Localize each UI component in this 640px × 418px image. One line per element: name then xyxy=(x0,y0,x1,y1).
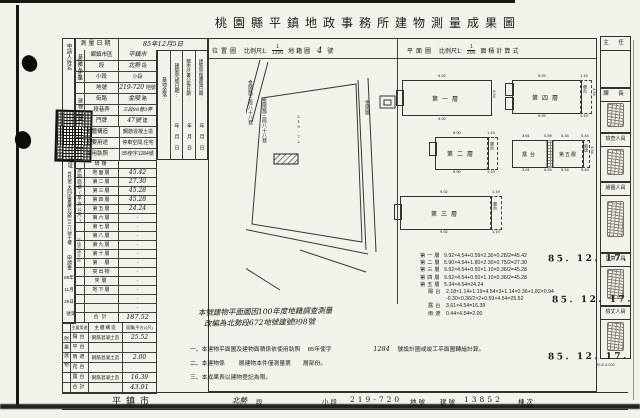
plan-floor2: 第二層 xyxy=(435,137,489,170)
approval-stamp xyxy=(607,201,624,237)
building-admin-date-label: 建築管理實施日期: xyxy=(199,59,204,101)
scan-right-edge xyxy=(633,40,634,400)
info-value: 金陵 路 xyxy=(119,94,156,104)
bottom-building-number: 13852 xyxy=(464,395,503,404)
attached-label: 雨遮 xyxy=(71,353,89,362)
ymd-label: 年月日 xyxy=(199,123,204,156)
punch-hole xyxy=(19,52,40,74)
road-label-center: 金陵路三段八十八巷 xyxy=(261,98,266,143)
formula-line: 陽台2.18×1.14+1.19×4.54×3+1.14×0.36+1.82×0… xyxy=(428,289,554,296)
info-label: 街路 xyxy=(85,94,119,104)
cadastral-sheet-label: 地籍圖 xyxy=(288,46,312,55)
plan-floor3-appendage xyxy=(394,204,402,220)
city-plan-date-label: 都市計畫公佈日期: xyxy=(186,59,191,101)
approval-stamp xyxy=(607,322,624,351)
dim-label: 1.19 xyxy=(492,190,500,194)
manager-label: 課 長 xyxy=(603,91,628,97)
chief-label: 主 任 xyxy=(603,40,628,46)
info-label: 小段 xyxy=(85,72,119,82)
plan-floor1: 第一層 xyxy=(402,80,492,116)
dim-label: 9.92 xyxy=(438,74,446,78)
floor-label: 地下層 xyxy=(85,286,119,294)
attached-value xyxy=(123,363,156,372)
approval-date-stamp: 85. 12. 17. xyxy=(548,254,629,265)
info-label: 主要用途 xyxy=(75,138,120,148)
floor-label: 第 層 xyxy=(85,259,119,267)
bottom-city: 平鎮市 xyxy=(112,394,154,407)
info-value: 停車空間,住宅 xyxy=(120,138,156,148)
dim-label: 4.54 xyxy=(492,90,496,98)
location-map-header: 位置圖 比例尺1: 11200 地籍圖 4 號 xyxy=(212,44,397,57)
dim-label: 1.19 xyxy=(492,230,500,234)
official-chief-sign-area xyxy=(600,48,631,89)
dim-label: 9.92 xyxy=(438,117,446,121)
formula-line: 露台3.61×4.54=16.39 xyxy=(428,303,554,310)
group-label-door: 建物門牌 xyxy=(77,98,82,122)
dim-label: 4.54 xyxy=(590,146,594,154)
plan-floor3-balcony: 陽台 xyxy=(490,196,502,230)
printed-note-1: 一、本建物平面圖及建物面積係依使用執照 85年使字 1284 號設計圖或竣工平面… xyxy=(190,344,484,353)
survey-date-row: 測量日期 85年12月5日 xyxy=(74,38,208,50)
info-value: 47號 建 xyxy=(119,116,156,126)
approval-stamp xyxy=(607,149,624,175)
info-label: 主體構造 xyxy=(75,127,120,137)
floor-value: · xyxy=(119,304,156,312)
dim-label: 5.34 xyxy=(561,134,569,138)
dim-label: 9.92 xyxy=(440,230,448,234)
info-value: 平鎮市 xyxy=(119,50,156,60)
group-label-site: 基地坐落 xyxy=(77,54,82,82)
attached-structure xyxy=(89,343,123,352)
attached-label: 露台 xyxy=(71,373,89,382)
floor-label: 第八層 xyxy=(85,232,119,240)
section-divider-vertical xyxy=(397,38,398,304)
completion-date-label: 建築完成日期: xyxy=(174,63,179,99)
floor-value: · xyxy=(119,214,156,222)
plan-floor4-stair-box xyxy=(505,83,514,96)
dim-label: 1.19 xyxy=(487,131,495,135)
info-label: 地號 xyxy=(85,83,119,93)
floor-total-label: 合計 xyxy=(85,313,119,322)
balcony-label: 陽台 xyxy=(490,142,494,150)
printed-note-2: 二、本建物係層建物本件僅測量第層部份。 xyxy=(190,358,326,367)
approval-date-stamp: 85. 12. 17. xyxy=(548,352,629,363)
floor-value: · xyxy=(119,277,156,285)
attached-value xyxy=(123,343,156,352)
info-value: 85使字1284號 xyxy=(120,149,156,160)
group-label-attached: 附屬建物 xyxy=(64,336,69,370)
floor-label: 第五層 xyxy=(85,205,119,213)
floor-plan-title: 平面圖 xyxy=(407,46,434,55)
survey-date-label: 測量日期 xyxy=(75,39,119,50)
attached-structures-table: 主要用途主體構造面積(平方公尺) 陽台鋼筋混凝土造25.52 平台 雨遮鋼筋混凝… xyxy=(62,322,157,394)
area-calc-label: 面積計算式 xyxy=(480,46,520,55)
official-manager-sign-area xyxy=(600,99,631,134)
info-value: 三段88巷3弄 xyxy=(119,105,156,115)
dim-label: 1.19 xyxy=(487,170,495,174)
road-label-right: 金陵路 xyxy=(364,100,369,115)
floor-label: 騎樓 xyxy=(85,160,119,168)
road-label-left: 金陵路三段八十八巷 xyxy=(247,80,252,125)
floor-plan-header: 平面圖 比例尺1: 1200 面積計算式 xyxy=(407,44,587,57)
dim-label: 9.92 xyxy=(538,74,546,78)
cadastral-sheet-number: 4 xyxy=(317,46,322,55)
floor-label xyxy=(85,295,119,303)
floor-area-table: 騎樓 地面層45.42 第二層27.30 第三層45.28 第四層45.28 第… xyxy=(74,160,157,323)
dim-label: 3.61 xyxy=(522,134,530,138)
cadastral-sheet-suffix: 號 xyxy=(327,46,333,55)
building-info-table: 鄉鎮市區平鎮市 段北勢 段 小段 小段 地號219-720 地號 街路金陵 路 … xyxy=(74,50,157,161)
dim-label: 3.61 xyxy=(522,168,530,172)
formula-line: 第四層9.92×4.54+0.50×1.10×0.36/2=45.28 xyxy=(420,275,554,282)
info-label: 門牌 xyxy=(85,116,119,126)
location-map-drawing xyxy=(246,58,397,292)
floor-label: 第四層 xyxy=(85,196,119,204)
dim-label: 5.34 xyxy=(561,168,569,172)
info-label: 段巷弄 xyxy=(85,105,119,115)
ymd-label: 年月日 xyxy=(186,123,191,156)
floor-value: · xyxy=(119,250,156,258)
dim-label: 9.92 xyxy=(440,190,448,194)
floor-value: · xyxy=(119,259,156,267)
attached-label: 陽台 xyxy=(71,333,89,342)
plan-floor5: 第五層 xyxy=(552,140,584,168)
floor-value: · xyxy=(119,295,156,303)
floor-value: 24.24 xyxy=(119,205,156,213)
scanned-survey-document: 桃園縣平鎮地政事務所建物測量成果圖 申請人姓名 住址 台北市大同區重慶北路三三八… xyxy=(0,0,640,418)
floor-label: 地面層 xyxy=(85,169,119,177)
bottom-section-suffix: 段 xyxy=(256,396,263,406)
dim-label: 1.19 xyxy=(580,114,588,118)
address-value: 台北市大同區重慶北路三三八號十樓 xyxy=(66,171,71,245)
bottom-section: 北勢 xyxy=(232,395,247,406)
floor-label: 第九層 xyxy=(85,241,119,249)
attached-label: 花台 xyxy=(71,363,89,372)
attached-structure: 鋼筋混凝土造 xyxy=(89,333,123,342)
remeasure-note-line2: 改編為北勢段672地號建號998號 xyxy=(204,316,315,329)
info-label: 使用執照 xyxy=(75,149,120,160)
balcony-label: 陽台 xyxy=(493,202,497,210)
approval-date-stamp: 85. 12. 17. xyxy=(552,295,633,306)
floor-value: 45.28 xyxy=(119,196,156,204)
info-value: 小段 xyxy=(119,72,156,82)
floor-label: 第二層 xyxy=(85,178,119,186)
dim-label: 5.90 xyxy=(453,170,461,174)
ymd-label: 年月日 xyxy=(174,123,179,156)
measure-role-label: 檢丈人員 xyxy=(605,309,625,315)
floor-label: 第七層 xyxy=(85,223,119,231)
formula-line: 第三層9.92×4.54+0.50×1.10×0.36/2=45.28 xyxy=(420,267,554,274)
floor-value: · xyxy=(119,241,156,249)
official-check-sign-area xyxy=(600,144,631,183)
plan-floor2-balcony: 陽台 xyxy=(487,137,498,170)
attached-value: 25.52 xyxy=(123,333,156,342)
floor-label: 第六層 xyxy=(85,214,119,222)
dim-label: 1.19 xyxy=(580,74,588,78)
area-formula-list: 第一層9.92×4.54+0.59×2.30×0.28/2=45.42 第二層5… xyxy=(420,253,554,318)
draw-role-label: 繪圖人員 xyxy=(605,185,625,191)
applicant-name-label: 申請人姓名 xyxy=(65,43,71,71)
plan-terrace: 露台 xyxy=(512,140,548,168)
attached-structure xyxy=(89,363,123,372)
formula-line: 第五層5.34×4.54=24.24 xyxy=(420,282,554,289)
plan-canopy: 雨遮 xyxy=(582,140,590,168)
floor-value: · xyxy=(119,286,156,294)
dim-label: 0.59 xyxy=(544,134,552,138)
plan-floor1-appendage xyxy=(396,90,404,106)
page-title: 桃園縣平鎮地政事務所建物測量成果圖 xyxy=(178,14,558,31)
plan-floor4: 第四層 xyxy=(512,80,582,114)
balcony-label: 陽台 xyxy=(583,85,587,93)
application-doc-label: 申請書 xyxy=(66,255,71,270)
floor-plan-scale-label: 比例尺1: xyxy=(439,46,462,55)
dim-label: 0.44 xyxy=(581,134,589,138)
dim-label: 0.44 xyxy=(581,168,589,172)
attached-structure-header: 主體構造 xyxy=(89,323,123,332)
attached-use-header: 主要用途 xyxy=(71,323,89,332)
bottom-unit-label: 棟次 xyxy=(518,396,535,406)
floor-label: 突出物 xyxy=(85,268,119,276)
bottom-parcel-suffix: 地號 xyxy=(410,396,427,406)
dim-label: 0.59 xyxy=(544,168,552,172)
floor-value: 45.42 xyxy=(119,169,156,177)
attached-structure: 鋼筋混凝土造 xyxy=(89,373,123,382)
bottom-parcel-number: 219-720 xyxy=(350,395,402,404)
attached-value: 2.00 xyxy=(123,353,156,362)
printed-note-3: 三、本成果表以建物登記為限。 xyxy=(190,372,271,381)
attached-structure: 鋼筋混凝土造 xyxy=(89,353,123,362)
info-label: 鄉鎮市區 xyxy=(85,50,119,60)
scan-top-edge xyxy=(0,0,515,3)
plan-floor2-appendage xyxy=(429,142,437,156)
location-map-title: 位置圖 xyxy=(212,46,239,55)
floor-value: 45.28 xyxy=(119,187,156,195)
info-value: 北勢 段 xyxy=(119,61,156,71)
floor-label: 夾層 xyxy=(85,277,119,285)
plan-floor4-stair-box xyxy=(505,97,514,110)
floor-plan-scale-fraction: 1200 xyxy=(467,45,475,57)
location-map-scale-label: 比例尺1: xyxy=(244,46,267,55)
approval-stamp xyxy=(607,103,624,127)
floor-label: 第十層 xyxy=(85,250,119,258)
survey-date-value: 85年12月5日 xyxy=(119,39,207,50)
check-role-label: 檢查人員 xyxy=(605,136,625,142)
print-code: 85.6.3.000 xyxy=(596,362,615,367)
attached-value: 16.39 xyxy=(123,373,156,382)
floor-value: · xyxy=(119,232,156,240)
floor-value: 27.30 xyxy=(119,178,156,186)
plan-floor4-balcony: 陽台 xyxy=(580,80,592,114)
official-draw-sign-area xyxy=(600,193,631,254)
plan-floor3: 第三層 xyxy=(400,196,492,230)
scan-left-edge xyxy=(16,5,19,405)
bottom-building-label: 建號 xyxy=(440,396,457,406)
map-parcel-number: 219-72 xyxy=(296,114,300,144)
info-value: 鋼筋混凝土造 xyxy=(120,127,156,137)
floor-value xyxy=(119,160,156,168)
dates-strip-block: 基地坐落: 建築完成日期:年月日 都市計畫公佈日期:年月日 建築管理實施日期:年… xyxy=(157,50,208,160)
bottom-subsection-label: 小段 xyxy=(322,396,339,406)
canopy-label: 雨遮 xyxy=(584,144,588,152)
info-label: 段 xyxy=(85,61,119,71)
dim-label: 9.92 xyxy=(538,114,546,118)
dim-label: 5.90 xyxy=(453,131,461,135)
attached-label: 平台 xyxy=(71,343,89,352)
floor-value: · xyxy=(119,268,156,276)
group-label-area: 建物面積(平方公尺) xyxy=(77,168,82,224)
attached-area-header: 面積(平方公尺) xyxy=(123,323,156,332)
info-value: 219-720 地號 xyxy=(119,83,156,93)
location-map-scale-fraction: 11200 xyxy=(272,45,283,57)
floor-total-value: 187.52 xyxy=(119,313,156,322)
site-location-label: 基地坐落: xyxy=(161,77,166,103)
floor-value: · xyxy=(119,223,156,231)
formula-line: 雨遮0.44×4.54=2.00 xyxy=(428,311,554,318)
floor-label: 第三層 xyxy=(85,187,119,195)
dim-label: 4.54 xyxy=(592,88,596,96)
floor-label xyxy=(85,304,119,312)
